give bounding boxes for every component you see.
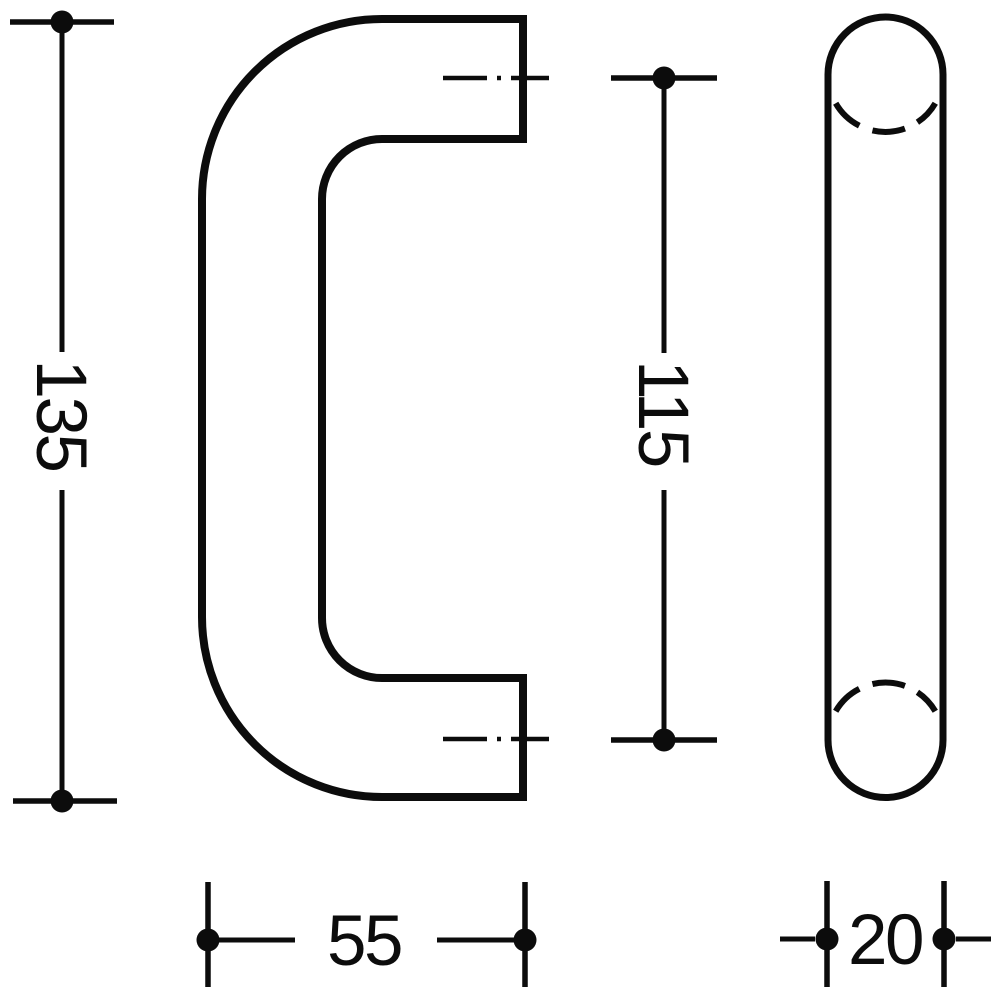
technical-drawing-canvas: 135 115 55 bbox=[0, 0, 1000, 997]
dim-135-label: 135 bbox=[21, 360, 100, 471]
dim-115-label: 115 bbox=[623, 360, 702, 466]
dim-135-endpoint-bottom bbox=[51, 790, 74, 813]
dimension-55: 55 bbox=[197, 882, 537, 987]
dim-20-endpoint-left bbox=[816, 928, 839, 951]
dim-20-label: 20 bbox=[848, 901, 922, 980]
handle-dimension-drawing: 135 115 55 bbox=[0, 0, 1000, 997]
dim-115-endpoint-top bbox=[653, 67, 676, 90]
dimension-20: 20 bbox=[780, 881, 991, 987]
dimension-135: 135 bbox=[10, 11, 117, 813]
dimension-115: 115 bbox=[611, 67, 717, 752]
dim-135-endpoint-top bbox=[51, 11, 74, 34]
front-view-outline bbox=[202, 19, 523, 797]
handle-side-view bbox=[828, 17, 943, 798]
dim-55-label: 55 bbox=[327, 902, 401, 981]
dim-55-endpoint-right bbox=[514, 929, 537, 952]
handle-front-view bbox=[202, 19, 549, 797]
dim-20-endpoint-right bbox=[933, 928, 956, 951]
dim-55-endpoint-left bbox=[197, 929, 220, 952]
dim-115-endpoint-bottom bbox=[653, 729, 676, 752]
